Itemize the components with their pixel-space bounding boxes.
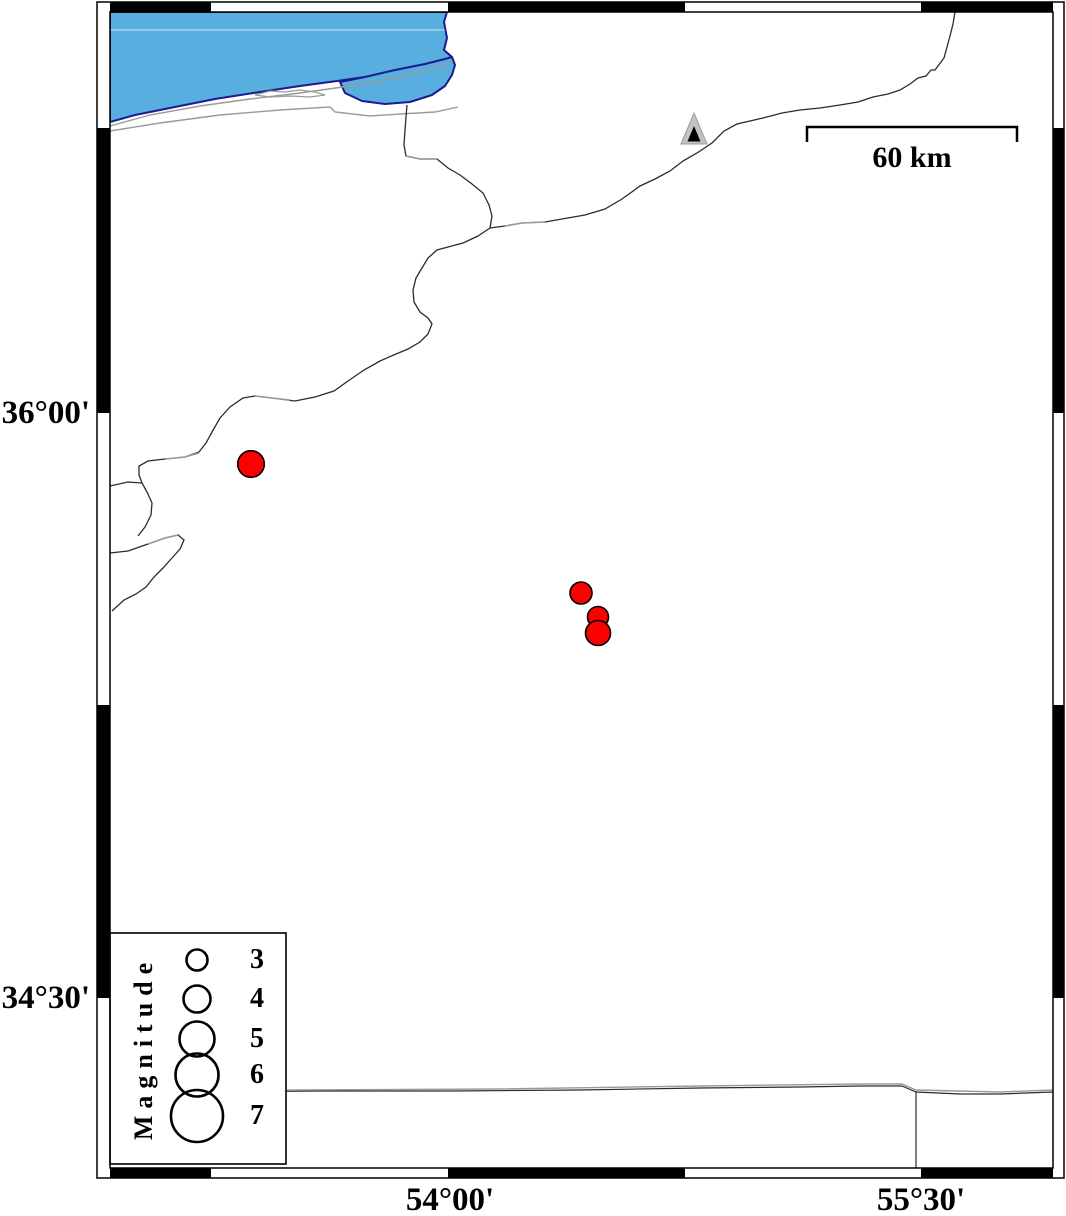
border-spur-west — [110, 482, 142, 486]
legend-value-6: 6 — [234, 1057, 280, 1093]
legend-value-7: 7 — [234, 1098, 280, 1134]
station-triangle-icon — [681, 113, 707, 144]
scale-bar — [807, 127, 1017, 142]
legend-value-5: 5 — [234, 1021, 280, 1057]
border-gray-seg-5 — [406, 156, 437, 159]
map-canvas — [0, 0, 1066, 1216]
border-line-west — [138, 228, 490, 536]
axis-label-lat-34-30: 34°30' — [0, 978, 90, 1018]
border-gray-seg-4 — [148, 535, 178, 544]
axis-label-lon-55-30: 55°30' — [836, 1180, 1006, 1216]
border-gray-seg-3 — [165, 453, 199, 459]
legend-value-3: 3 — [234, 942, 280, 978]
earthquake-marker — [570, 582, 592, 604]
axis-label-lon-54: 54°00' — [365, 1180, 535, 1216]
axis-label-lat-36: 36°00' — [0, 393, 90, 433]
legend-value-4: 4 — [234, 981, 280, 1017]
earthquake-markers — [238, 451, 611, 646]
sea-polygon — [110, 12, 452, 122]
border-gray-seg-2 — [255, 396, 290, 400]
earthquake-marker — [586, 621, 611, 646]
border-loop-southwest — [110, 535, 184, 611]
border-gray-seg-1 — [505, 222, 545, 226]
border-line-northeast — [490, 12, 955, 228]
legend-title: Magnitude — [129, 956, 159, 1140]
scale-bar-label: 60 km — [827, 141, 997, 175]
seismicity-map: 36°00' 34°30' 54°00' 55°30' 60 km Magnit… — [0, 0, 1066, 1216]
river-line — [404, 105, 492, 228]
earthquake-marker — [238, 451, 265, 478]
